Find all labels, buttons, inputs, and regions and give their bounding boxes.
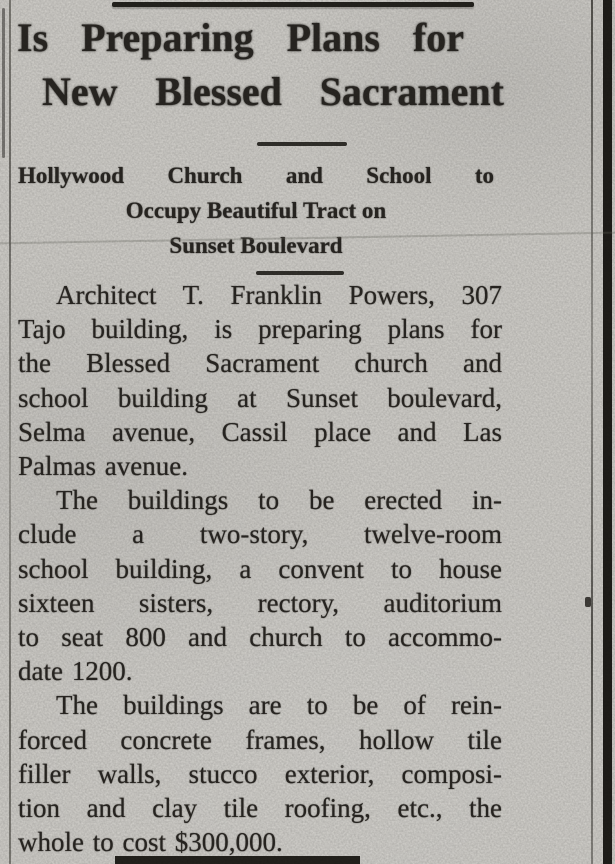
body-line: Tajo building, is preparing plans for — [18, 312, 502, 346]
right-column-rule-thick — [603, 0, 612, 864]
bottom-section-rule — [115, 856, 360, 864]
top-section-rule — [112, 2, 474, 7]
headline-line-1: Is Preparing Plans for — [17, 11, 464, 65]
subhead-line-3: Sunset Boulevard — [18, 228, 494, 263]
body-line: to seat 800 and church to accommo- — [18, 620, 502, 654]
body-line: whole to cost $300,000. — [18, 825, 502, 859]
paragraph-1: Architect T. Franklin Powers, 307Tajo bu… — [18, 278, 502, 483]
subhead-line-2: Occupy Beautiful Tract on — [18, 193, 494, 228]
newspaper-clipping: Is Preparing Plans for New Blessed Sacra… — [0, 0, 615, 864]
body-line: date 1200. — [18, 654, 502, 688]
body-line: the Blessed Sacrament church and — [18, 346, 502, 380]
subheadline: Hollywood Church and School to Occupy Be… — [18, 158, 494, 263]
paragraph-3: The buildings are to be of rein-forced c… — [18, 688, 502, 859]
headline-divider — [257, 142, 347, 146]
scan-edge-artifact — [2, 8, 5, 158]
article-body: Architect T. Franklin Powers, 307Tajo bu… — [18, 278, 502, 859]
body-line: tion and clay tile roofing, etc., the — [18, 791, 502, 825]
body-line: Selma avenue, Cassil place and Las — [18, 415, 502, 449]
body-line: The buildings to be erected in- — [18, 483, 502, 517]
headline: Is Preparing Plans for New Blessed Sacra… — [0, 11, 504, 119]
body-line: school building, a convent to house — [18, 552, 502, 586]
paragraph-2: The buildings to be erected in-clude a t… — [18, 483, 502, 688]
body-line: The buildings are to be of rein- — [18, 688, 502, 722]
right-column-rule-thin — [591, 0, 593, 864]
body-line: Architect T. Franklin Powers, 307 — [18, 278, 502, 312]
body-line: forced concrete frames, hollow tile — [18, 723, 502, 757]
body-line: filler walls, stucco exterior, composi- — [18, 757, 502, 791]
body-line: Palmas avenue. — [18, 449, 502, 483]
ink-spot-artifact — [585, 597, 591, 607]
body-line: school building at Sunset boulevard, — [18, 381, 502, 415]
body-line: sixteen sisters, rectory, auditorium — [18, 586, 502, 620]
body-line: clude a two-story, twelve-room — [18, 517, 502, 551]
subhead-line-1: Hollywood Church and School to — [18, 158, 494, 193]
subhead-divider — [256, 271, 344, 275]
headline-line-2: New Blessed Sacrament — [42, 65, 504, 119]
left-column-rule — [9, 0, 11, 864]
